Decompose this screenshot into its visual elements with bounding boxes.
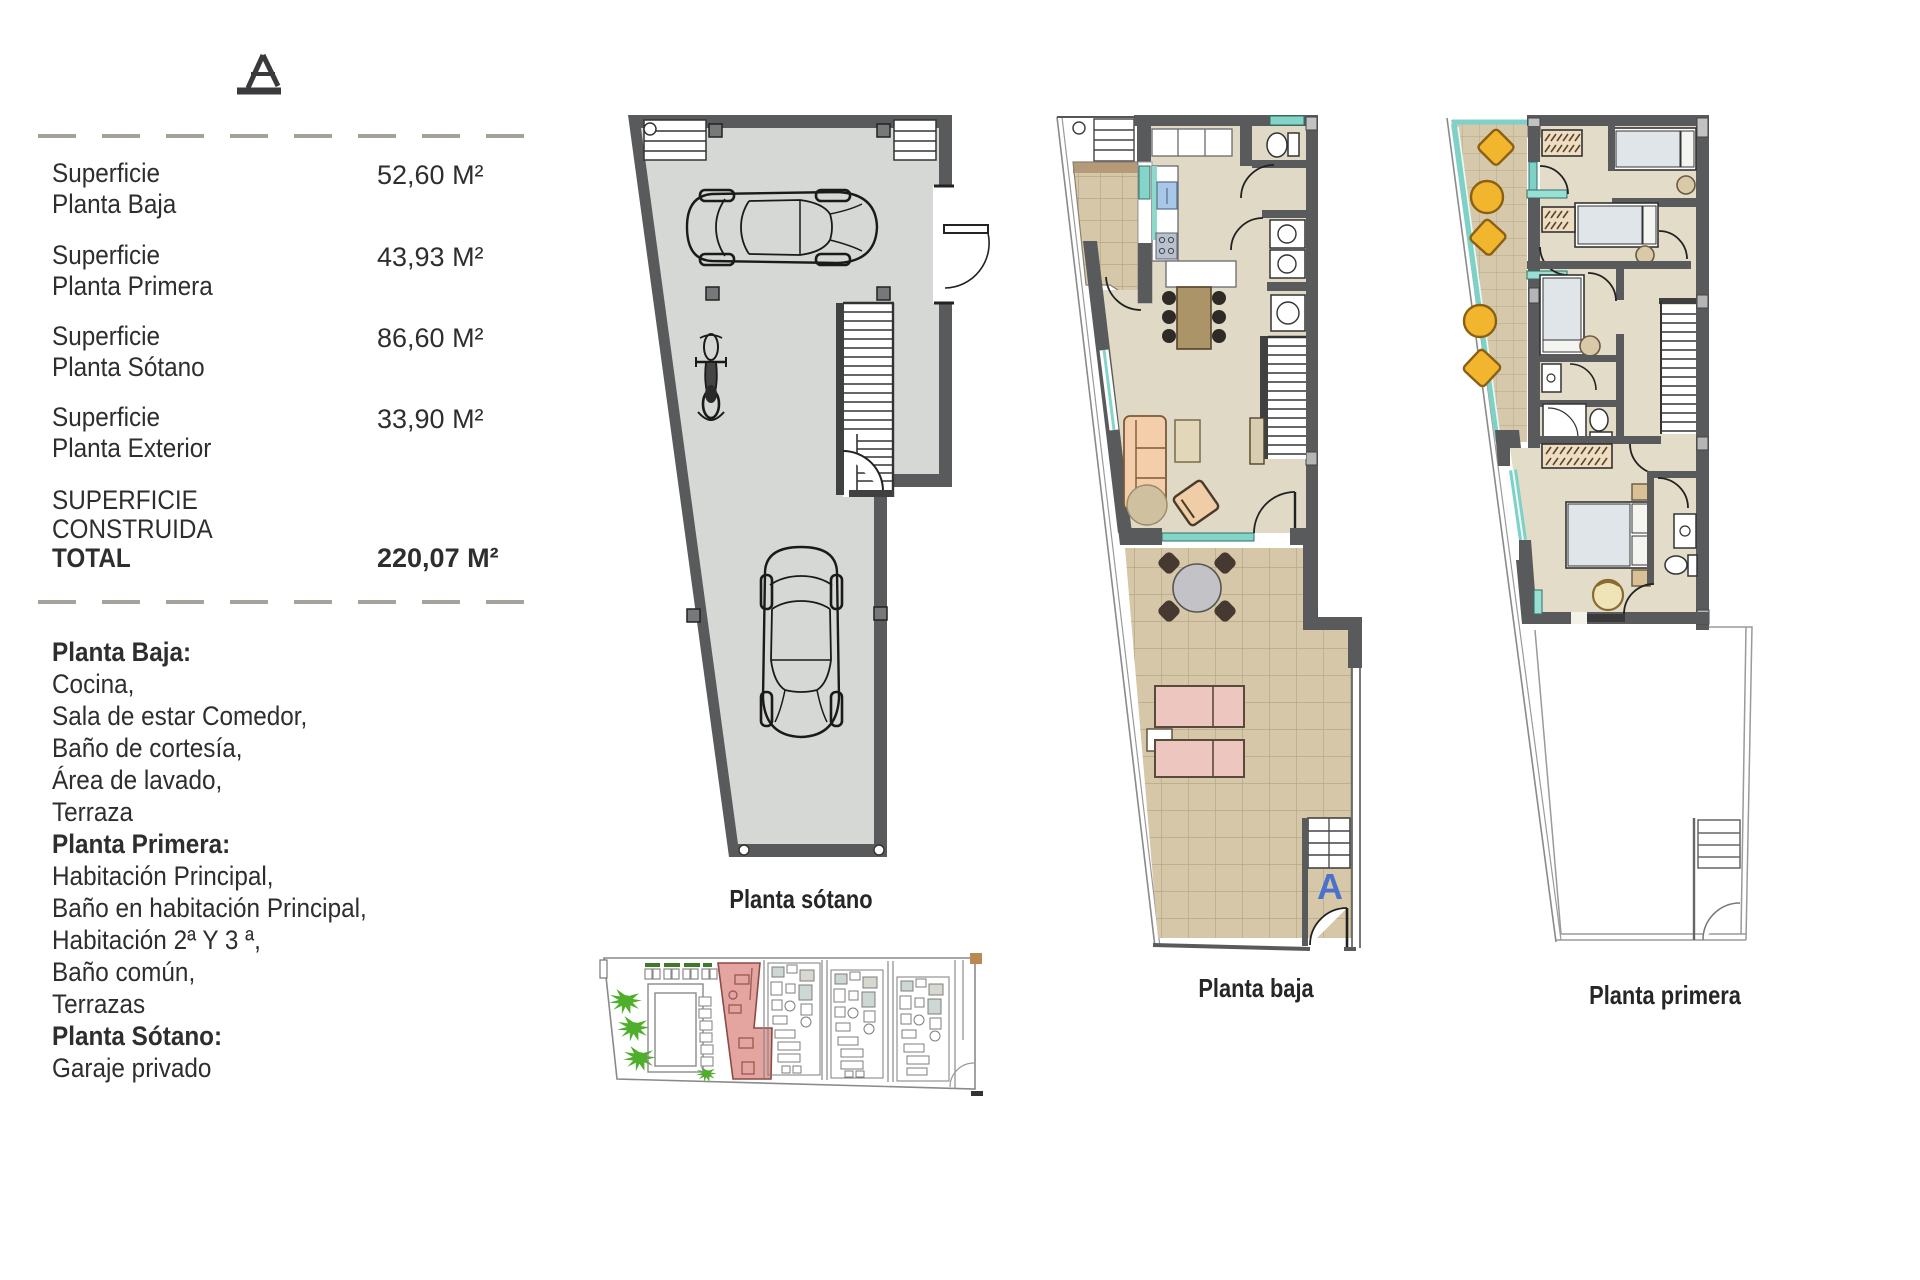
svg-text:A: A [1317, 866, 1343, 907]
